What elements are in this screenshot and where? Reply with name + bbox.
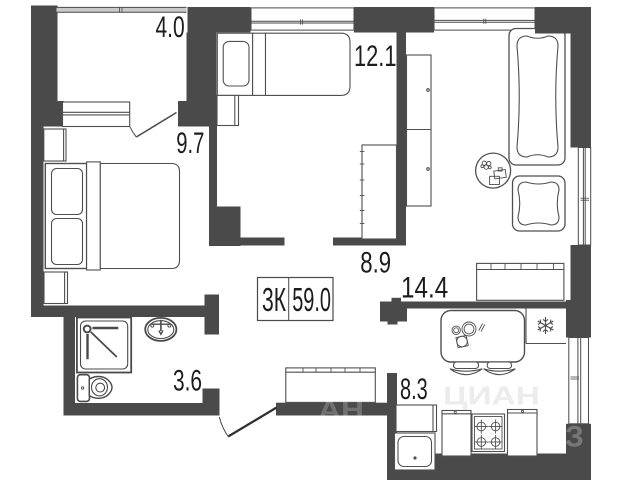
svg-text:9.7: 9.7: [176, 127, 204, 160]
svg-text:ЦИАН: ЦИАН: [443, 381, 540, 411]
svg-text:3К: 3К: [262, 281, 286, 318]
svg-text:З: З: [565, 421, 584, 454]
svg-text:АН: АН: [318, 395, 364, 425]
svg-text:14.4: 14.4: [401, 272, 448, 305]
svg-text:8.3: 8.3: [400, 373, 428, 406]
svg-text:4.0: 4.0: [156, 11, 185, 44]
svg-text:59.0: 59.0: [292, 281, 331, 318]
svg-text:3.6: 3.6: [173, 364, 202, 397]
svg-text:8.9: 8.9: [360, 246, 391, 279]
svg-text:12.1: 12.1: [354, 40, 397, 73]
